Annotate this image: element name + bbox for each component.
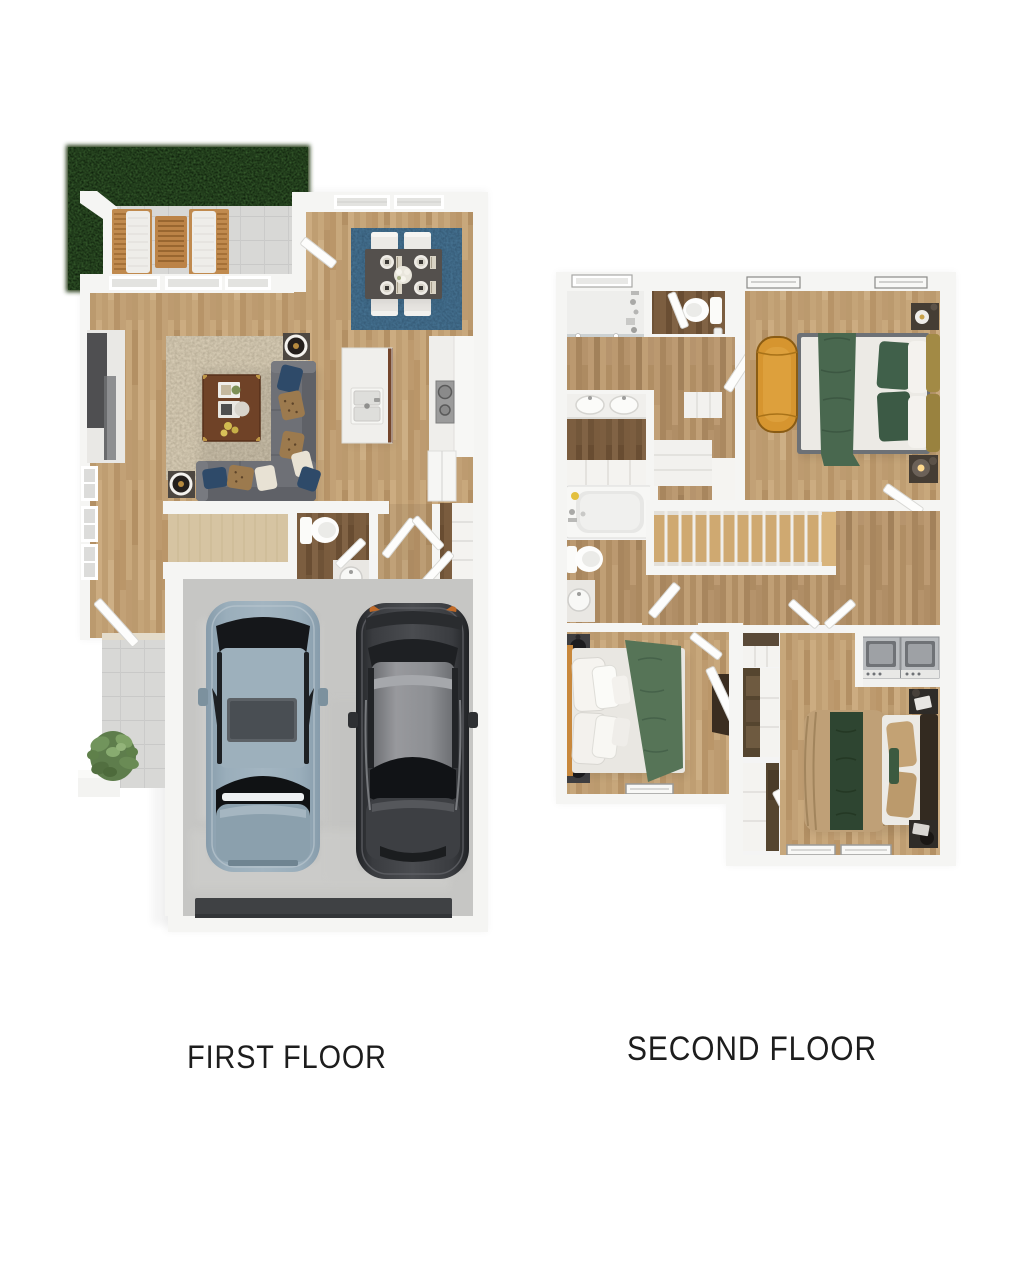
svg-text:FIRST FLOOR: FIRST FLOOR <box>187 1040 387 1076</box>
svg-text:SECOND FLOOR: SECOND FLOOR <box>627 1029 877 1067</box>
